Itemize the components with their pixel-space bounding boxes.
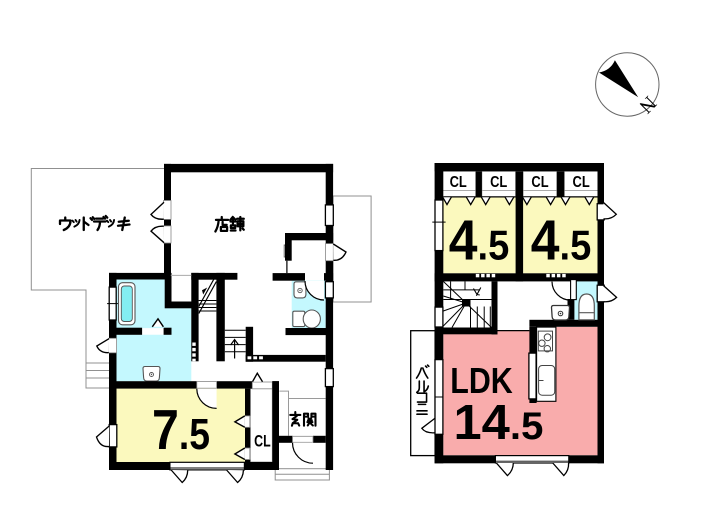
svg-text:14.5: 14.5	[454, 396, 544, 450]
svg-text:CL: CL	[254, 432, 271, 451]
svg-text:CL: CL	[490, 174, 507, 191]
svg-text:CL: CL	[450, 174, 467, 191]
svg-text:CL: CL	[573, 174, 590, 191]
svg-text:CL: CL	[531, 174, 548, 191]
svg-text:LDK: LDK	[450, 360, 513, 401]
